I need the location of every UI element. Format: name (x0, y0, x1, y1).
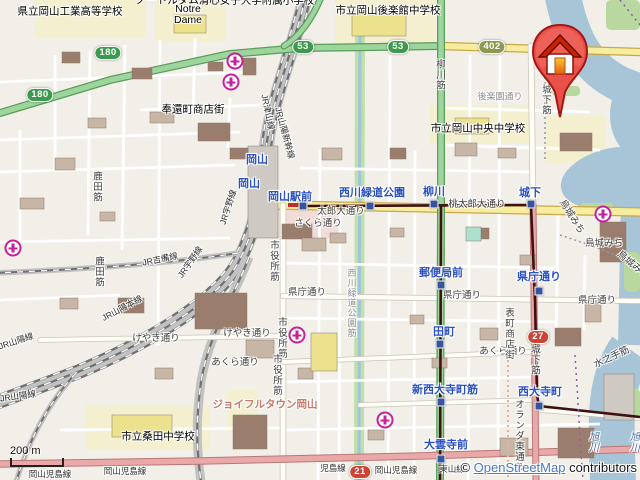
map-canvas[interactable]: 県立岡山工業高等学校ノートルダム清心女子大学附属小学校NotreDame市立岡山… (0, 0, 640, 480)
attribution-copyright: © (460, 460, 473, 475)
destination-marker[interactable] (528, 22, 592, 122)
map-attribution: © OpenStreetMap contributors (460, 460, 637, 475)
scale-bar-line (10, 458, 64, 467)
nishigawa-canal (359, 22, 360, 480)
openstreetmap-link[interactable]: OpenStreetMap (474, 460, 566, 475)
scale-bar-label: 200 m (10, 445, 64, 457)
scale-bar: 200 m (10, 445, 64, 467)
attribution-suffix: contributors (565, 460, 637, 475)
house-door (555, 58, 565, 74)
